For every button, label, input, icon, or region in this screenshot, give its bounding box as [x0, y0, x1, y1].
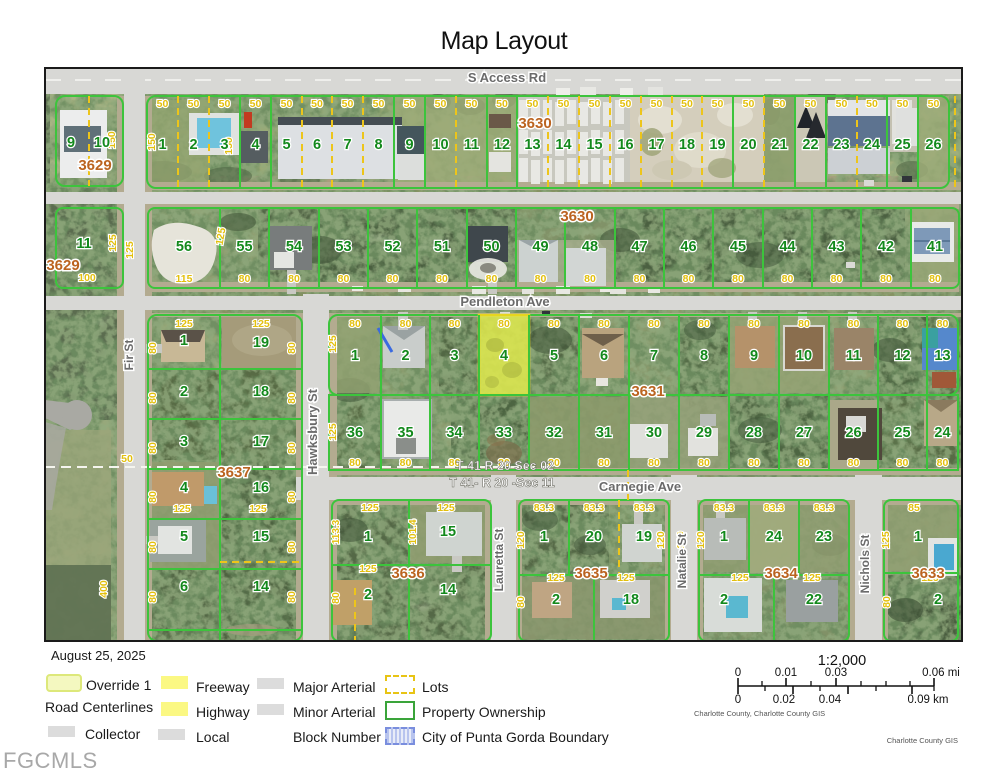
svg-text:24: 24	[934, 425, 950, 441]
svg-text:125: 125	[327, 335, 339, 353]
svg-text:83.3: 83.3	[714, 502, 735, 514]
svg-text:34: 34	[446, 425, 462, 441]
svg-text:80: 80	[515, 596, 527, 608]
svg-text:Fir St: Fir St	[122, 340, 136, 371]
svg-text:125: 125	[547, 572, 565, 584]
svg-text:83.3: 83.3	[814, 502, 835, 514]
svg-text:115: 115	[176, 273, 193, 285]
svg-text:50: 50	[404, 98, 416, 110]
svg-text:80: 80	[330, 592, 342, 604]
svg-text:6: 6	[313, 137, 321, 153]
svg-text:7: 7	[650, 348, 658, 364]
svg-text:5: 5	[282, 137, 290, 153]
svg-text:6: 6	[180, 579, 188, 595]
svg-text:19: 19	[636, 529, 652, 545]
svg-text:80: 80	[286, 491, 298, 503]
svg-text:0.01: 0.01	[775, 667, 797, 679]
svg-text:80: 80	[436, 273, 448, 285]
svg-text:2: 2	[720, 592, 728, 608]
svg-text:80: 80	[880, 273, 892, 285]
svg-text:2: 2	[934, 592, 942, 608]
svg-text:80: 80	[286, 591, 298, 603]
svg-text:3630: 3630	[518, 115, 551, 132]
svg-text:19: 19	[253, 335, 269, 351]
svg-text:80: 80	[338, 273, 350, 285]
svg-text:18: 18	[679, 137, 695, 153]
svg-text:3: 3	[220, 137, 228, 153]
svg-text:12: 12	[894, 348, 910, 364]
svg-text:48: 48	[582, 239, 598, 255]
svg-text:25: 25	[894, 425, 910, 441]
svg-text:15: 15	[253, 529, 269, 545]
svg-text:11: 11	[846, 348, 861, 364]
svg-text:80: 80	[286, 342, 298, 354]
svg-text:80: 80	[897, 318, 909, 330]
svg-text:0: 0	[735, 667, 741, 679]
svg-text:45: 45	[730, 239, 746, 255]
svg-text:80: 80	[848, 318, 860, 330]
svg-text:50: 50	[157, 98, 169, 110]
svg-text:125: 125	[731, 572, 749, 584]
svg-text:33: 33	[496, 425, 512, 441]
svg-text:3: 3	[450, 348, 458, 364]
svg-text:18: 18	[623, 592, 639, 608]
svg-text:10: 10	[94, 135, 110, 151]
svg-text:10: 10	[432, 137, 448, 153]
svg-text:50: 50	[373, 98, 385, 110]
svg-text:50: 50	[219, 98, 231, 110]
svg-text:19: 19	[709, 137, 725, 153]
svg-text:120: 120	[515, 531, 527, 549]
svg-text:23: 23	[833, 137, 849, 153]
svg-text:50: 50	[620, 98, 632, 110]
svg-text:3630: 3630	[560, 208, 593, 225]
svg-text:50: 50	[836, 98, 848, 110]
svg-text:49: 49	[532, 239, 548, 255]
svg-text:14: 14	[555, 137, 571, 153]
svg-text:8: 8	[700, 348, 708, 364]
svg-text:100: 100	[78, 272, 96, 284]
svg-text:13: 13	[524, 137, 540, 153]
svg-text:5: 5	[180, 529, 188, 545]
svg-text:80: 80	[349, 318, 361, 330]
svg-text:11: 11	[76, 236, 91, 252]
svg-text:50: 50	[681, 98, 693, 110]
svg-text:0.03: 0.03	[825, 667, 847, 679]
svg-text:44: 44	[779, 239, 795, 255]
svg-text:80: 80	[400, 318, 412, 330]
svg-text:80: 80	[147, 491, 159, 503]
svg-text:4: 4	[251, 137, 259, 153]
svg-text:80: 80	[147, 591, 159, 603]
svg-text:80: 80	[498, 318, 510, 330]
svg-text:400: 400	[98, 580, 110, 598]
svg-text:125: 125	[252, 318, 270, 330]
svg-text:83.3: 83.3	[764, 502, 785, 514]
svg-text:2: 2	[189, 137, 197, 153]
svg-text:80: 80	[897, 457, 909, 469]
svg-text:50: 50	[483, 239, 499, 255]
svg-text:80: 80	[598, 318, 610, 330]
svg-text:0.04: 0.04	[819, 694, 842, 706]
svg-text:9: 9	[67, 135, 75, 151]
svg-text:3633: 3633	[911, 565, 944, 582]
svg-text:11: 11	[464, 137, 479, 153]
svg-text:1: 1	[720, 529, 728, 545]
svg-text:80: 80	[584, 273, 596, 285]
svg-text:50: 50	[712, 98, 724, 110]
svg-text:50: 50	[558, 98, 570, 110]
svg-text:41: 41	[927, 239, 943, 255]
svg-text:36: 36	[347, 425, 363, 441]
svg-text:80: 80	[881, 596, 893, 608]
svg-text:85: 85	[908, 502, 920, 514]
svg-text:83.3: 83.3	[584, 502, 605, 514]
svg-text:24: 24	[766, 529, 782, 545]
svg-text:18: 18	[253, 384, 269, 400]
svg-text:52: 52	[384, 239, 400, 255]
svg-text:Carnegie Ave: Carnegie Ave	[599, 479, 681, 494]
svg-text:80: 80	[147, 392, 159, 404]
svg-text:80: 80	[648, 318, 660, 330]
svg-text:35: 35	[397, 425, 413, 441]
svg-text:1: 1	[540, 529, 548, 545]
svg-text:50: 50	[866, 98, 878, 110]
svg-text:1: 1	[914, 529, 922, 545]
svg-text:3637: 3637	[217, 464, 250, 481]
svg-text:125: 125	[249, 503, 267, 515]
svg-text:51: 51	[434, 239, 450, 255]
svg-text:120: 120	[695, 531, 707, 549]
svg-text:80: 80	[400, 457, 412, 469]
svg-text:30: 30	[646, 425, 662, 441]
svg-text:Charlotte County GIS: Charlotte County GIS	[887, 736, 958, 745]
svg-text:16: 16	[253, 480, 269, 496]
svg-text:55: 55	[236, 239, 252, 255]
svg-text:26: 26	[845, 425, 861, 441]
svg-text:83.3: 83.3	[634, 502, 655, 514]
svg-text:42: 42	[878, 239, 894, 255]
svg-text:50: 50	[897, 98, 909, 110]
svg-text:53: 53	[335, 239, 351, 255]
svg-text:54: 54	[286, 239, 302, 255]
svg-text:Charlotte County, Charlotte Co: Charlotte County, Charlotte County GIS	[694, 709, 825, 718]
svg-text:0: 0	[735, 694, 741, 706]
svg-text:3634: 3634	[764, 565, 798, 582]
svg-text:125: 125	[107, 234, 119, 252]
svg-text:80: 80	[548, 318, 560, 330]
svg-text:83.3: 83.3	[534, 502, 555, 514]
svg-text:0.06 mi: 0.06 mi	[922, 667, 960, 679]
svg-text:16: 16	[617, 137, 633, 153]
svg-text:24: 24	[864, 137, 880, 153]
svg-text:15: 15	[586, 137, 602, 153]
svg-text:14: 14	[253, 579, 269, 595]
svg-text:10: 10	[796, 348, 812, 364]
svg-text:31: 31	[596, 425, 612, 441]
svg-text:9: 9	[405, 137, 413, 153]
svg-text:80: 80	[147, 342, 159, 354]
svg-text:5: 5	[550, 348, 558, 364]
svg-text:4: 4	[180, 480, 188, 496]
svg-text:120: 120	[655, 531, 667, 549]
svg-text:27: 27	[796, 425, 812, 441]
svg-text:15: 15	[440, 524, 456, 540]
svg-text:1: 1	[351, 348, 359, 364]
svg-text:12: 12	[494, 137, 510, 153]
svg-text:50: 50	[466, 98, 478, 110]
svg-text:1: 1	[364, 529, 372, 545]
svg-text:80: 80	[683, 273, 695, 285]
svg-text:2: 2	[180, 384, 188, 400]
svg-text:80: 80	[831, 273, 843, 285]
svg-text:0.09 km: 0.09 km	[908, 694, 949, 706]
svg-text:80: 80	[937, 318, 949, 330]
svg-text:80: 80	[929, 273, 941, 285]
svg-text:125: 125	[359, 563, 377, 575]
svg-text:50: 50	[651, 98, 663, 110]
svg-text:50: 50	[311, 98, 323, 110]
svg-text:17: 17	[648, 137, 664, 153]
svg-text:80: 80	[698, 457, 710, 469]
svg-text:3629: 3629	[78, 157, 111, 174]
svg-text:80: 80	[147, 541, 159, 553]
svg-text:29: 29	[696, 425, 712, 441]
svg-text:Natalie St: Natalie St	[675, 534, 689, 589]
svg-text:8: 8	[374, 137, 382, 153]
svg-text:7: 7	[343, 137, 351, 153]
svg-text:125: 125	[124, 241, 136, 259]
svg-text:50: 50	[435, 98, 447, 110]
svg-text:80: 80	[349, 457, 361, 469]
svg-text:125: 125	[173, 503, 191, 515]
svg-text:80: 80	[286, 541, 298, 553]
svg-text:21: 21	[771, 137, 787, 153]
svg-text:3635: 3635	[574, 565, 607, 582]
svg-text:2: 2	[401, 348, 409, 364]
svg-text:80: 80	[732, 273, 744, 285]
svg-text:80: 80	[449, 318, 461, 330]
svg-text:80: 80	[748, 318, 760, 330]
svg-text:50: 50	[743, 98, 755, 110]
svg-text:50: 50	[496, 98, 508, 110]
svg-text:3636: 3636	[391, 565, 424, 582]
svg-text:28: 28	[746, 425, 762, 441]
svg-text:80: 80	[748, 457, 760, 469]
svg-text:80: 80	[387, 273, 399, 285]
svg-text:25: 25	[894, 137, 910, 153]
svg-text:56: 56	[176, 239, 192, 255]
svg-text:80: 80	[239, 273, 251, 285]
svg-text:50: 50	[527, 98, 539, 110]
svg-text:80: 80	[535, 273, 547, 285]
svg-text:1: 1	[180, 333, 188, 349]
svg-text:80: 80	[848, 457, 860, 469]
svg-text:80: 80	[798, 457, 810, 469]
svg-text:46: 46	[680, 239, 696, 255]
svg-text:80: 80	[598, 457, 610, 469]
svg-text:26: 26	[925, 137, 941, 153]
svg-text:T 41- R 20 -Sec 11: T 41- R 20 -Sec 11	[449, 476, 555, 490]
svg-text:20: 20	[586, 529, 602, 545]
svg-text:125: 125	[437, 502, 455, 514]
svg-text:3631: 3631	[631, 383, 664, 400]
svg-text:50: 50	[121, 453, 133, 465]
svg-text:22: 22	[802, 137, 818, 153]
svg-text:2: 2	[552, 592, 560, 608]
svg-text:80: 80	[288, 273, 300, 285]
svg-text:125: 125	[880, 531, 892, 549]
svg-text:50: 50	[589, 98, 601, 110]
svg-text:T 41 R 20 Sec 02: T 41 R 20 Sec 02	[456, 459, 554, 473]
svg-text:80: 80	[286, 392, 298, 404]
svg-text:50: 50	[281, 98, 293, 110]
svg-text:9: 9	[750, 348, 758, 364]
svg-text:20: 20	[740, 137, 756, 153]
svg-text:80: 80	[286, 442, 298, 454]
svg-text:50: 50	[805, 98, 817, 110]
svg-text:125: 125	[361, 502, 379, 514]
svg-text:47: 47	[631, 239, 647, 255]
svg-text:150: 150	[146, 133, 158, 151]
svg-text:13: 13	[934, 348, 950, 364]
svg-text:80: 80	[486, 273, 498, 285]
svg-text:80: 80	[937, 457, 949, 469]
svg-text:2: 2	[364, 587, 372, 603]
svg-text:4: 4	[500, 348, 508, 364]
svg-text:14: 14	[440, 582, 456, 598]
svg-text:17: 17	[253, 434, 269, 450]
svg-text:125: 125	[617, 572, 635, 584]
svg-text:80: 80	[782, 273, 794, 285]
svg-text:22: 22	[806, 592, 822, 608]
svg-text:113.3: 113.3	[331, 519, 342, 544]
svg-text:101.4: 101.4	[408, 519, 419, 544]
svg-text:50: 50	[250, 98, 262, 110]
svg-text:80: 80	[698, 318, 710, 330]
svg-text:32: 32	[546, 425, 562, 441]
svg-text:3629: 3629	[46, 257, 79, 274]
svg-text:125: 125	[327, 423, 339, 441]
svg-text:50: 50	[342, 98, 354, 110]
svg-text:Lauretta St: Lauretta St	[492, 529, 506, 592]
svg-text:80: 80	[147, 442, 159, 454]
svg-text:50: 50	[774, 98, 786, 110]
svg-text:Hawksbury St: Hawksbury St	[305, 388, 320, 475]
svg-text:3: 3	[180, 434, 188, 450]
svg-text:80: 80	[648, 457, 660, 469]
svg-text:1: 1	[158, 137, 166, 153]
svg-text:S Access Rd: S Access Rd	[468, 70, 546, 85]
svg-text:Pendleton Ave: Pendleton Ave	[460, 294, 549, 309]
svg-text:50: 50	[928, 98, 940, 110]
svg-text:6: 6	[600, 348, 608, 364]
svg-text:43: 43	[828, 239, 844, 255]
svg-text:80: 80	[634, 273, 646, 285]
svg-text:125: 125	[175, 318, 193, 330]
svg-text:0.02: 0.02	[773, 694, 795, 706]
svg-text:Nichols St: Nichols St	[858, 535, 872, 594]
svg-text:50: 50	[188, 98, 200, 110]
svg-text:125: 125	[803, 572, 821, 584]
svg-text:23: 23	[816, 529, 832, 545]
svg-text:80: 80	[798, 318, 810, 330]
